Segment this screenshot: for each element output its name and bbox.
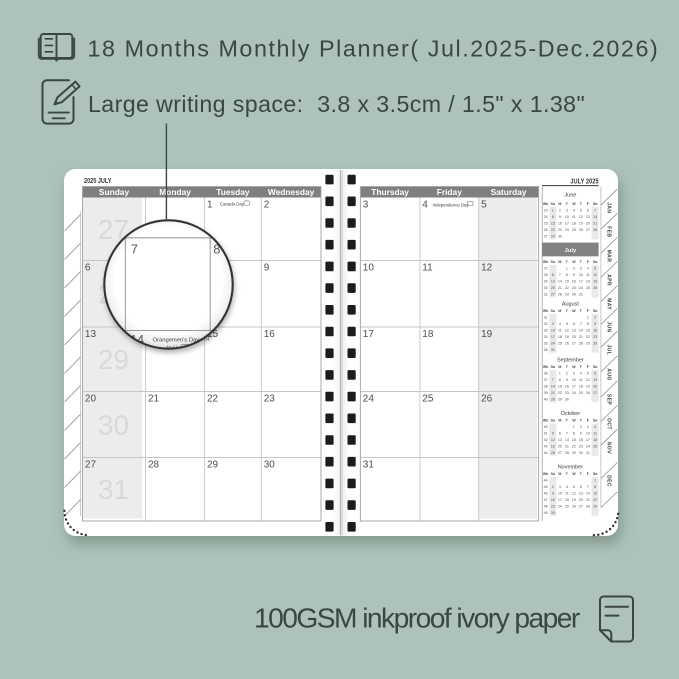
svg-text:5: 5 <box>587 371 589 375</box>
svg-text:Monday: Monday <box>159 187 191 197</box>
svg-text:October: October <box>561 411 581 417</box>
svg-text:1: 1 <box>207 199 213 210</box>
svg-text:4: 4 <box>566 485 568 489</box>
svg-text:24: 24 <box>544 215 548 219</box>
svg-text:M: M <box>558 419 561 423</box>
svg-text:26: 26 <box>586 391 590 395</box>
svg-text:9: 9 <box>559 215 561 219</box>
svg-text:11: 11 <box>579 378 583 382</box>
svg-text:30: 30 <box>558 234 562 238</box>
svg-text:18: 18 <box>422 329 434 340</box>
svg-text:JUL: JUL <box>606 344 612 355</box>
svg-text:17: 17 <box>572 384 576 388</box>
svg-text:23: 23 <box>572 286 576 290</box>
svg-text:13: 13 <box>572 328 576 332</box>
svg-text:6: 6 <box>85 262 91 273</box>
svg-text:11: 11 <box>565 491 569 495</box>
svg-text:12: 12 <box>565 328 569 332</box>
svg-text:25: 25 <box>579 391 583 395</box>
svg-text:41: 41 <box>544 431 548 435</box>
svg-text:26: 26 <box>481 393 493 404</box>
svg-text:45: 45 <box>544 485 548 489</box>
svg-text:30: 30 <box>565 397 569 401</box>
svg-text:33: 33 <box>544 328 548 332</box>
svg-text:20: 20 <box>558 444 562 448</box>
svg-text:29: 29 <box>551 234 555 238</box>
svg-text:27: 27 <box>544 234 548 238</box>
svg-text:29: 29 <box>593 504 597 508</box>
svg-text:21: 21 <box>586 498 590 502</box>
svg-text:24: 24 <box>572 391 576 395</box>
svg-text:24: 24 <box>586 444 590 448</box>
svg-text:17: 17 <box>558 498 562 502</box>
svg-text:4: 4 <box>559 322 561 326</box>
svg-text:3: 3 <box>587 425 589 429</box>
svg-text:9: 9 <box>573 273 575 277</box>
svg-text:4: 4 <box>594 425 596 429</box>
svg-text:30: 30 <box>98 409 129 440</box>
svg-text:28: 28 <box>579 341 583 345</box>
svg-text:43: 43 <box>544 444 548 448</box>
svg-text:14: 14 <box>593 215 597 219</box>
svg-text:3: 3 <box>566 208 568 212</box>
svg-text:27: 27 <box>85 459 97 470</box>
svg-text:AUG: AUG <box>606 368 612 380</box>
svg-text:Tuesday: Tuesday <box>216 187 250 197</box>
svg-text:3: 3 <box>573 371 575 375</box>
svg-text:SEP: SEP <box>606 394 612 405</box>
svg-text:22: 22 <box>572 444 576 448</box>
svg-text:W: W <box>572 202 576 206</box>
svg-text:10: 10 <box>363 262 375 273</box>
svg-text:23: 23 <box>565 391 569 395</box>
svg-text:W: W <box>572 419 576 423</box>
svg-text:7: 7 <box>587 485 589 489</box>
svg-text:2: 2 <box>580 425 582 429</box>
svg-text:5: 5 <box>566 322 568 326</box>
svg-text:26: 26 <box>551 451 555 455</box>
svg-text:12: 12 <box>586 378 590 382</box>
svg-text:25: 25 <box>422 393 434 404</box>
svg-text:18: 18 <box>558 335 562 339</box>
svg-text:M: M <box>558 260 561 264</box>
svg-text:2: 2 <box>573 266 575 270</box>
svg-text:25: 25 <box>572 228 576 232</box>
svg-text:20: 20 <box>85 393 97 404</box>
svg-text:16: 16 <box>572 279 576 283</box>
svg-text:21: 21 <box>558 286 562 290</box>
svg-text:June: June <box>564 193 576 199</box>
svg-text:7: 7 <box>580 322 582 326</box>
svg-text:6: 6 <box>587 208 589 212</box>
svg-text:11: 11 <box>593 431 597 435</box>
svg-text:JUN: JUN <box>606 321 612 332</box>
svg-text:7: 7 <box>552 378 554 382</box>
svg-text:3: 3 <box>559 485 561 489</box>
svg-text:37: 37 <box>544 378 548 382</box>
svg-text:11: 11 <box>558 328 562 332</box>
svg-text:10: 10 <box>586 431 590 435</box>
svg-text:21: 21 <box>579 335 583 339</box>
svg-text:21: 21 <box>565 444 569 448</box>
svg-text:9: 9 <box>580 431 582 435</box>
svg-text:November: November <box>558 465 584 471</box>
svg-text:47: 47 <box>544 498 548 502</box>
svg-text:1: 1 <box>594 478 596 482</box>
svg-text:OCT: OCT <box>606 418 612 430</box>
svg-text:27: 27 <box>586 228 590 232</box>
svg-text:2: 2 <box>594 315 596 319</box>
svg-text:25: 25 <box>565 504 569 508</box>
svg-text:Su: Su <box>551 202 556 206</box>
svg-text:12: 12 <box>572 491 576 495</box>
svg-text:30: 30 <box>544 286 548 290</box>
svg-text:20: 20 <box>593 384 597 388</box>
svg-text:31: 31 <box>544 315 548 319</box>
svg-text:21: 21 <box>593 221 597 225</box>
svg-text:31: 31 <box>579 292 583 296</box>
svg-text:24: 24 <box>551 341 555 345</box>
svg-text:34: 34 <box>544 335 548 339</box>
svg-text:31: 31 <box>363 459 375 470</box>
svg-text:2: 2 <box>566 371 568 375</box>
svg-text:3: 3 <box>552 322 554 326</box>
svg-text:Wk: Wk <box>543 472 548 476</box>
svg-text:20: 20 <box>586 221 590 225</box>
svg-text:18: 18 <box>572 221 576 225</box>
svg-text:13: 13 <box>558 438 562 442</box>
svg-text:26: 26 <box>593 286 597 290</box>
svg-text:28: 28 <box>586 504 590 508</box>
svg-text:8: 8 <box>566 273 568 277</box>
svg-text:28: 28 <box>148 459 160 470</box>
svg-text:36: 36 <box>544 371 548 375</box>
svg-text:MAR: MAR <box>606 250 612 263</box>
svg-text:44: 44 <box>544 478 548 482</box>
svg-text:7: 7 <box>566 431 568 435</box>
svg-text:W: W <box>572 472 576 476</box>
svg-text:W: W <box>572 365 576 369</box>
svg-text:14: 14 <box>551 384 555 388</box>
svg-text:28: 28 <box>558 292 562 296</box>
svg-text:15: 15 <box>593 491 597 495</box>
svg-text:1: 1 <box>587 315 589 319</box>
svg-text:9: 9 <box>552 491 554 495</box>
svg-text:M: M <box>558 309 561 313</box>
svg-text:42: 42 <box>544 438 548 442</box>
svg-text:15: 15 <box>551 221 555 225</box>
svg-text:29: 29 <box>586 341 590 345</box>
svg-text:8: 8 <box>587 322 589 326</box>
svg-text:46: 46 <box>544 491 548 495</box>
svg-text:JULY 2025: JULY 2025 <box>570 176 599 185</box>
svg-text:8: 8 <box>552 215 554 219</box>
svg-text:29: 29 <box>565 292 569 296</box>
svg-text:Wk: Wk <box>543 365 548 369</box>
svg-text:FEB: FEB <box>606 226 612 237</box>
svg-text:Wk: Wk <box>543 202 548 206</box>
svg-text:W: W <box>572 309 576 313</box>
svg-text:16: 16 <box>565 384 569 388</box>
svg-text:Canada Day: Canada Day <box>220 201 245 206</box>
svg-text:Large writing space: 3.8 x 3.: Large writing space: 3.8 x 3.5cm / 1.5" … <box>88 91 585 117</box>
svg-text:18: 18 <box>579 384 583 388</box>
svg-text:4: 4 <box>587 266 589 270</box>
svg-text:17: 17 <box>551 335 555 339</box>
svg-text:12: 12 <box>481 262 493 273</box>
svg-text:17: 17 <box>363 329 375 340</box>
svg-text:14: 14 <box>586 491 590 495</box>
svg-text:17: 17 <box>565 221 569 225</box>
svg-text:25: 25 <box>544 221 548 225</box>
svg-text:24: 24 <box>565 228 569 232</box>
svg-text:28: 28 <box>565 451 569 455</box>
svg-text:48: 48 <box>544 504 548 508</box>
svg-text:12: 12 <box>579 215 583 219</box>
svg-text:23: 23 <box>579 444 583 448</box>
svg-text:24: 24 <box>579 286 583 290</box>
svg-text:Thursday: Thursday <box>371 187 409 197</box>
svg-text:26: 26 <box>579 228 583 232</box>
svg-text:6: 6 <box>580 485 582 489</box>
svg-text:7: 7 <box>559 273 561 277</box>
svg-text:Su: Su <box>551 309 556 313</box>
svg-text:22: 22 <box>551 228 555 232</box>
svg-text:40: 40 <box>544 397 548 401</box>
svg-text:11: 11 <box>422 262 433 273</box>
svg-text:26: 26 <box>544 228 548 232</box>
svg-text:14: 14 <box>558 279 562 283</box>
svg-text:2025 JULY: 2025 JULY <box>84 176 112 185</box>
svg-text:31: 31 <box>586 451 590 455</box>
svg-text:13: 13 <box>593 378 597 382</box>
svg-text:27: 27 <box>551 292 555 296</box>
svg-text:Wk: Wk <box>543 260 548 264</box>
svg-text:16: 16 <box>264 329 276 340</box>
svg-text:13: 13 <box>85 329 97 340</box>
svg-text:3: 3 <box>363 199 369 210</box>
svg-text:8: 8 <box>594 485 596 489</box>
svg-text:Su: Su <box>551 365 556 369</box>
svg-text:32: 32 <box>544 322 548 326</box>
svg-text:21: 21 <box>551 391 555 395</box>
svg-text:22: 22 <box>565 286 569 290</box>
svg-text:12: 12 <box>593 273 597 277</box>
svg-text:28: 28 <box>593 228 597 232</box>
svg-text:29: 29 <box>207 459 219 470</box>
svg-text:5: 5 <box>552 431 554 435</box>
svg-text:19: 19 <box>572 498 576 502</box>
svg-text:24: 24 <box>558 504 562 508</box>
svg-text:MAY: MAY <box>606 298 612 310</box>
svg-text:3: 3 <box>580 266 582 270</box>
svg-text:Wk: Wk <box>543 419 548 423</box>
svg-text:5: 5 <box>481 199 487 210</box>
svg-text:19: 19 <box>565 335 569 339</box>
svg-text:8: 8 <box>559 378 561 382</box>
svg-text:39: 39 <box>544 391 548 395</box>
svg-text:26: 26 <box>572 504 576 508</box>
svg-text:Independence Day: Independence Day <box>433 202 470 207</box>
svg-text:10: 10 <box>551 328 555 332</box>
svg-text:9: 9 <box>264 262 270 273</box>
svg-text:W: W <box>572 260 576 264</box>
svg-text:6: 6 <box>552 273 554 277</box>
svg-text:19: 19 <box>551 444 555 448</box>
svg-text:27: 27 <box>572 341 576 345</box>
svg-text:23: 23 <box>264 393 276 404</box>
svg-text:22: 22 <box>207 393 219 404</box>
svg-text:23: 23 <box>544 208 548 212</box>
svg-text:4: 4 <box>573 208 575 212</box>
svg-text:10: 10 <box>565 215 569 219</box>
svg-text:40: 40 <box>544 425 548 429</box>
svg-text:15: 15 <box>565 279 569 283</box>
svg-text:31: 31 <box>98 474 129 505</box>
svg-text:20: 20 <box>579 498 583 502</box>
svg-text:29: 29 <box>558 397 562 401</box>
svg-text:29: 29 <box>544 279 548 283</box>
svg-text:36: 36 <box>544 348 548 352</box>
svg-text:21: 21 <box>148 393 160 404</box>
svg-text:38: 38 <box>544 384 548 388</box>
svg-text:20: 20 <box>572 335 576 339</box>
svg-text:26: 26 <box>565 341 569 345</box>
svg-text:29: 29 <box>572 451 576 455</box>
svg-text:1: 1 <box>559 371 561 375</box>
svg-text:19: 19 <box>579 221 583 225</box>
svg-text:8: 8 <box>573 431 575 435</box>
svg-text:APR: APR <box>606 274 612 286</box>
svg-text:12: 12 <box>551 438 555 442</box>
svg-text:23: 23 <box>593 335 597 339</box>
svg-text:31: 31 <box>544 292 548 296</box>
svg-text:22: 22 <box>593 498 597 502</box>
svg-text:September: September <box>557 358 584 364</box>
svg-text:Su: Su <box>551 260 556 264</box>
svg-text:2: 2 <box>264 199 270 210</box>
svg-text:14: 14 <box>565 438 569 442</box>
svg-text:23: 23 <box>551 504 555 508</box>
svg-text:9: 9 <box>566 378 568 382</box>
svg-text:Sunday: Sunday <box>99 187 130 197</box>
svg-text:Su: Su <box>551 419 556 423</box>
svg-text:16: 16 <box>558 221 562 225</box>
svg-text:5: 5 <box>594 266 596 270</box>
svg-text:17: 17 <box>586 438 590 442</box>
svg-text:7: 7 <box>594 208 596 212</box>
svg-text:1: 1 <box>566 266 568 270</box>
svg-text:M: M <box>558 202 561 206</box>
svg-text:25: 25 <box>558 341 562 345</box>
svg-text:Friday: Friday <box>437 187 462 197</box>
svg-text:23: 23 <box>558 228 562 232</box>
svg-text:30: 30 <box>551 511 555 515</box>
svg-text:16: 16 <box>593 328 597 332</box>
svg-text:4: 4 <box>422 199 428 210</box>
svg-text:1: 1 <box>552 208 554 212</box>
svg-text:11: 11 <box>572 215 576 219</box>
svg-text:13: 13 <box>551 279 555 283</box>
svg-text:10: 10 <box>572 378 576 382</box>
svg-text:30: 30 <box>264 459 276 470</box>
svg-text:15: 15 <box>586 328 590 332</box>
svg-text:16: 16 <box>579 438 583 442</box>
svg-text:9: 9 <box>594 322 596 326</box>
svg-text:6: 6 <box>594 371 596 375</box>
svg-text:35: 35 <box>544 341 548 345</box>
svg-text:28: 28 <box>551 397 555 401</box>
svg-text:2: 2 <box>552 485 554 489</box>
svg-text:30: 30 <box>579 451 583 455</box>
svg-text:6: 6 <box>559 431 561 435</box>
svg-text:29: 29 <box>98 344 129 375</box>
svg-text:Su: Su <box>551 472 556 476</box>
svg-text:19: 19 <box>593 279 597 283</box>
svg-text:27: 27 <box>558 451 562 455</box>
svg-text:44: 44 <box>544 451 548 455</box>
svg-text:16: 16 <box>551 498 555 502</box>
svg-text:Saturday: Saturday <box>491 187 527 197</box>
svg-text:20: 20 <box>551 286 555 290</box>
svg-text:10: 10 <box>558 491 562 495</box>
svg-text:19: 19 <box>586 384 590 388</box>
svg-text:10: 10 <box>579 273 583 277</box>
svg-text:4: 4 <box>580 371 582 375</box>
svg-text:24: 24 <box>363 393 375 404</box>
svg-text:27: 27 <box>579 504 583 508</box>
svg-text:13: 13 <box>579 491 583 495</box>
svg-text:18: 18 <box>565 498 569 502</box>
svg-text:30: 30 <box>593 341 597 345</box>
svg-text:August: August <box>562 302 580 308</box>
svg-text:13: 13 <box>586 215 590 219</box>
svg-text:July: July <box>565 248 577 254</box>
svg-text:49: 49 <box>544 511 548 515</box>
svg-text:19: 19 <box>481 329 493 340</box>
svg-text:18: 18 <box>593 438 597 442</box>
svg-text:28: 28 <box>544 273 548 277</box>
svg-text:Wk: Wk <box>543 309 548 313</box>
svg-text:17: 17 <box>579 279 583 283</box>
svg-text:5: 5 <box>580 208 582 212</box>
svg-text:25: 25 <box>586 286 590 290</box>
svg-text:DEC: DEC <box>606 475 612 487</box>
svg-text:JAN: JAN <box>606 202 612 213</box>
svg-text:15: 15 <box>558 384 562 388</box>
svg-text:5: 5 <box>573 485 575 489</box>
svg-text:100GSM inkproof ivory paper: 100GSM inkproof ivory paper <box>254 602 580 634</box>
svg-text:NOV: NOV <box>606 442 612 454</box>
svg-text:27: 27 <box>593 391 597 395</box>
svg-text:M: M <box>558 472 561 476</box>
svg-text:M: M <box>558 365 561 369</box>
svg-text:18: 18 <box>586 279 590 283</box>
svg-text:31: 31 <box>551 348 555 352</box>
svg-text:11: 11 <box>586 273 590 277</box>
svg-text:22: 22 <box>586 335 590 339</box>
svg-text:18 Months Monthly Planner( Jul: 18 Months Monthly Planner( Jul.2025-Dec.… <box>88 36 660 62</box>
svg-text:6: 6 <box>573 322 575 326</box>
svg-text:22: 22 <box>558 391 562 395</box>
svg-text:Wednesday: Wednesday <box>268 187 315 197</box>
svg-text:27: 27 <box>544 266 548 270</box>
svg-text:15: 15 <box>572 438 576 442</box>
svg-text:2: 2 <box>559 208 561 212</box>
svg-text:1: 1 <box>573 425 575 429</box>
svg-text:30: 30 <box>572 292 576 296</box>
svg-text:14: 14 <box>579 328 583 332</box>
